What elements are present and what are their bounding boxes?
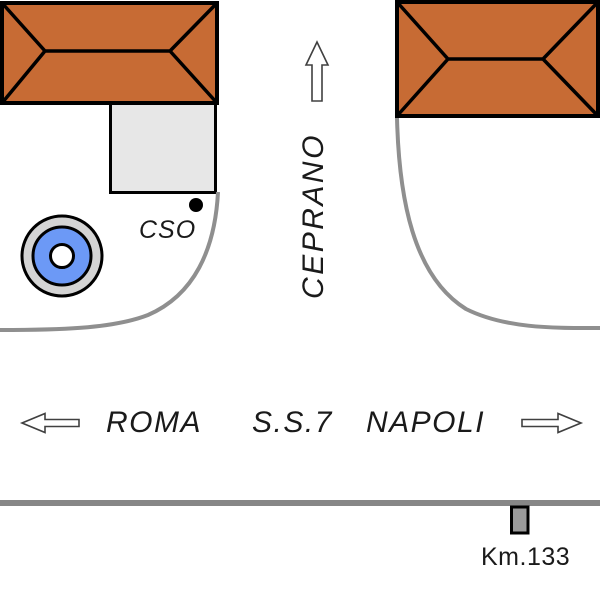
location-sketch-map: CEPRANO CSO ROMA S.S.7 NAPOLI Km.133 (0, 0, 600, 600)
km-marker-label: Km.133 (481, 545, 570, 569)
building-label-cso: CSO (139, 215, 196, 245)
well-center (51, 245, 74, 268)
road-curve-east (397, 118, 600, 328)
destination-label-napoli: NAPOLI (366, 405, 485, 441)
arrow-left-icon (22, 414, 79, 433)
arrow-up-icon (306, 42, 328, 101)
well-landmark-icon (22, 216, 102, 296)
arrow-right-icon (522, 414, 581, 433)
entrance-dot-marker (189, 198, 203, 212)
destination-label-roma: ROMA (106, 405, 202, 441)
direction-label-ceprano: CEPRANO (294, 111, 334, 321)
km-post-marker (512, 507, 529, 533)
road-name-label: S.S.7 (252, 405, 333, 441)
